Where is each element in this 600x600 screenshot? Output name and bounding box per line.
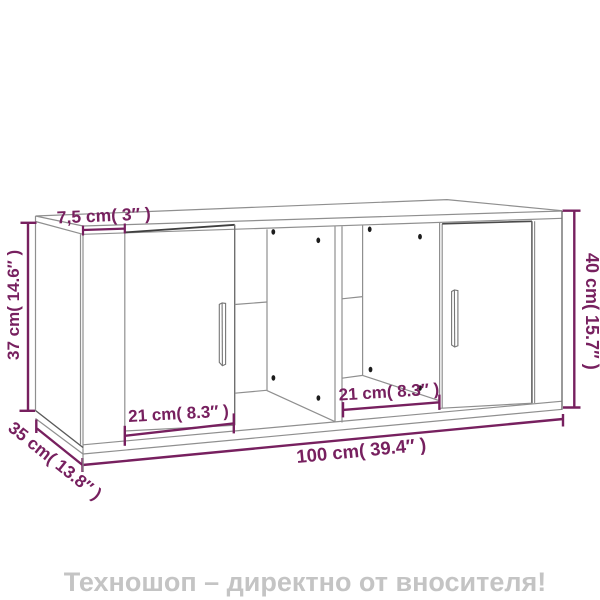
svg-text:40 cm( 15.7″ ): 40 cm( 15.7″ ) — [582, 253, 600, 370]
svg-text:Техношоп – директно от вносите: Техношоп – директно от вносителя! — [64, 567, 547, 597]
svg-text:37 cm( 14.6″ ): 37 cm( 14.6″ ) — [4, 250, 23, 360]
svg-text:7,5 cm( 3″ ): 7,5 cm( 3″ ) — [56, 203, 151, 227]
